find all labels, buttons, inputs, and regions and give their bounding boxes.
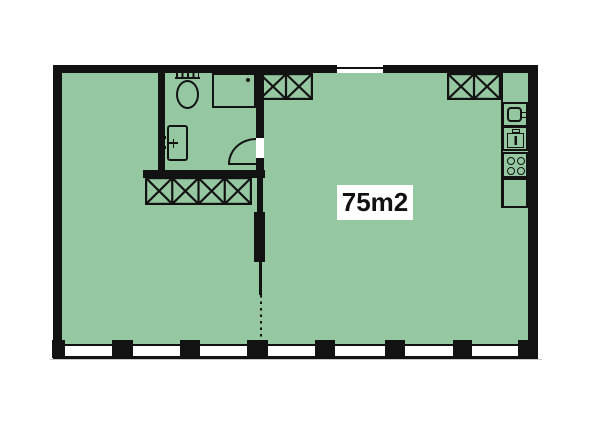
bottom-shadow-line bbox=[50, 359, 542, 361]
washbasin-faucet-cross bbox=[173, 139, 175, 148]
oven-grill bbox=[507, 133, 524, 148]
floor-plan: 75m2 bbox=[0, 0, 600, 428]
oven-knob bbox=[512, 129, 520, 133]
closet-x-icon bbox=[145, 177, 252, 205]
outer-wall-right bbox=[528, 65, 538, 358]
entrance-opening bbox=[337, 65, 383, 73]
stove-burner bbox=[517, 157, 525, 165]
kitchen-sink-faucet bbox=[521, 112, 527, 118]
outer-wall-left bbox=[53, 65, 62, 358]
window bbox=[65, 344, 112, 356]
window bbox=[268, 344, 315, 356]
closet-x-icon bbox=[259, 73, 313, 100]
divider-wall-thin bbox=[259, 262, 262, 295]
entrance-threshold-line bbox=[337, 67, 383, 69]
divider-wall-thick bbox=[254, 212, 265, 262]
divider-dotted-line bbox=[260, 295, 263, 343]
bathroom-wall-right-lower bbox=[256, 158, 264, 170]
bathroom-wall-left bbox=[158, 65, 165, 170]
kitchen-sink-basin bbox=[507, 107, 522, 122]
window bbox=[335, 344, 385, 356]
toilet-bowl bbox=[176, 80, 199, 109]
outer-wall-top-right bbox=[383, 65, 538, 73]
oven-icon bbox=[502, 126, 528, 151]
cabinet-icon bbox=[502, 178, 528, 208]
toilet-tank-line bbox=[175, 77, 200, 79]
floor-area bbox=[53, 65, 538, 358]
kitchen-sink-icon bbox=[502, 102, 528, 127]
washbasin-tap-dot bbox=[164, 146, 167, 149]
window bbox=[405, 344, 453, 356]
stove-burner bbox=[517, 167, 525, 175]
closet-x-icon bbox=[447, 73, 501, 100]
toilet-icon bbox=[176, 69, 199, 77]
washbasin-tap-dot bbox=[164, 136, 167, 139]
window bbox=[200, 344, 247, 356]
shower-head-dot bbox=[246, 78, 250, 82]
window bbox=[133, 344, 180, 356]
area-label: 75m2 bbox=[337, 185, 413, 220]
bathroom-door-opening bbox=[256, 138, 264, 158]
stove-burner bbox=[507, 157, 515, 165]
stove-burner bbox=[507, 167, 515, 175]
divider-wall-upper bbox=[257, 178, 263, 212]
stove-icon bbox=[502, 152, 528, 178]
window bbox=[472, 344, 518, 356]
